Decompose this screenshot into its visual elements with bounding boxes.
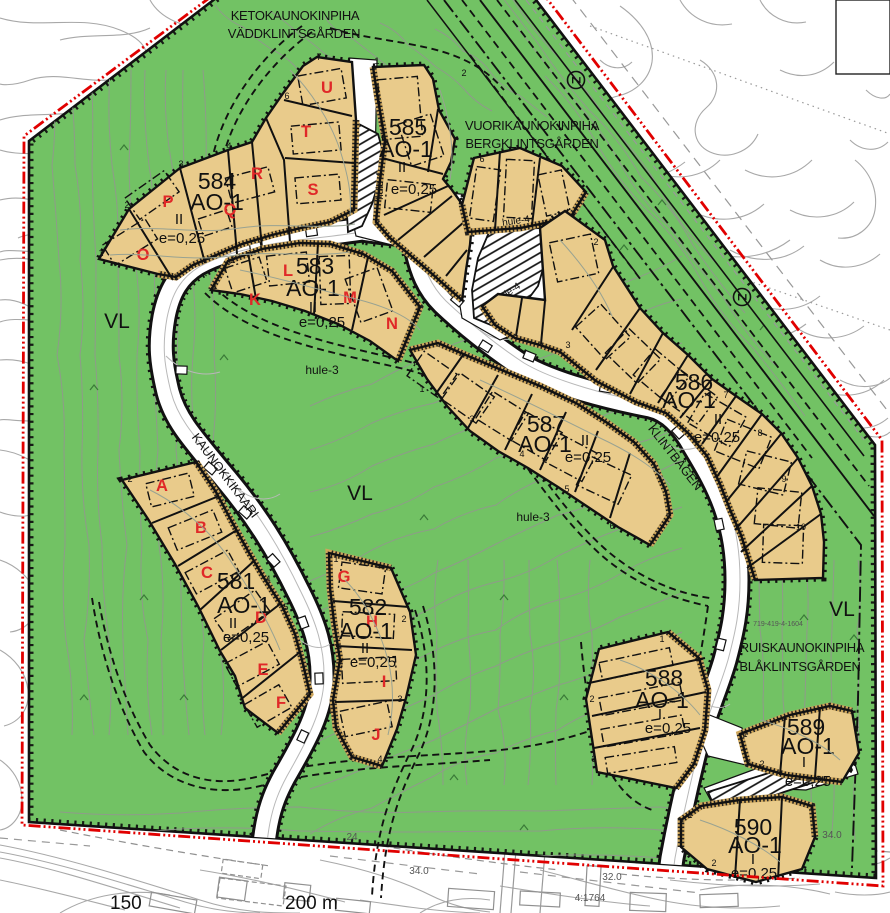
svg-text:J: J bbox=[371, 726, 380, 744]
svg-text:4: 4 bbox=[519, 449, 524, 459]
svg-text:3: 3 bbox=[397, 694, 402, 704]
svg-text:1: 1 bbox=[212, 281, 217, 291]
svg-text:2: 2 bbox=[124, 200, 129, 210]
svg-text:6: 6 bbox=[609, 521, 614, 531]
svg-text:S: S bbox=[307, 181, 318, 199]
svg-text:e=0,25: e=0,25 bbox=[223, 629, 269, 646]
svg-text:M: M bbox=[343, 289, 357, 307]
svg-text:2: 2 bbox=[127, 474, 132, 484]
svg-text:AO-1: AO-1 bbox=[662, 387, 716, 413]
svg-text:II: II bbox=[175, 211, 183, 228]
svg-text:E: E bbox=[257, 661, 268, 679]
svg-text:VL: VL bbox=[104, 310, 130, 333]
svg-text:e=0,25: e=0,25 bbox=[694, 429, 740, 446]
svg-text:VL: VL bbox=[829, 598, 855, 621]
svg-text:C: C bbox=[201, 564, 213, 582]
svg-text:hule-3: hule-3 bbox=[516, 510, 550, 524]
svg-text:BLÅKLINTSGÅRDEN: BLÅKLINTSGÅRDEN bbox=[739, 659, 860, 674]
svg-text:2: 2 bbox=[230, 255, 235, 265]
svg-text:1: 1 bbox=[742, 729, 747, 739]
svg-text:4: 4 bbox=[377, 754, 382, 764]
svg-text:3: 3 bbox=[469, 414, 474, 424]
svg-text:2: 2 bbox=[759, 759, 764, 769]
svg-text:7: 7 bbox=[723, 390, 728, 400]
svg-text:34.0: 34.0 bbox=[409, 866, 429, 877]
svg-text:II: II bbox=[581, 432, 589, 449]
svg-text:hule-4: hule-4 bbox=[375, 172, 386, 200]
svg-text:e=0,25: e=0,25 bbox=[391, 181, 437, 198]
svg-text:A: A bbox=[156, 477, 168, 495]
svg-text:3: 3 bbox=[357, 249, 362, 259]
svg-text:KETOKAUNOKINPIHA: KETOKAUNOKINPIHA bbox=[231, 8, 360, 23]
svg-text:150: 150 bbox=[110, 893, 142, 913]
svg-text:e=0,25: e=0,25 bbox=[350, 654, 396, 671]
svg-text:T: T bbox=[301, 123, 311, 141]
svg-text:1: 1 bbox=[333, 554, 338, 564]
svg-text:3: 3 bbox=[591, 754, 596, 764]
svg-text:4: 4 bbox=[265, 574, 270, 584]
svg-text:3: 3 bbox=[195, 459, 200, 469]
svg-text:hule-3: hule-3 bbox=[305, 363, 339, 377]
svg-text:3: 3 bbox=[178, 159, 183, 169]
svg-text:10: 10 bbox=[796, 522, 806, 532]
svg-text:582: 582 bbox=[349, 594, 387, 620]
svg-text:K: K bbox=[249, 291, 261, 309]
svg-text:3: 3 bbox=[565, 340, 570, 350]
svg-text:8: 8 bbox=[757, 428, 762, 438]
svg-text:2: 2 bbox=[401, 614, 406, 624]
svg-text:4: 4 bbox=[226, 141, 231, 151]
svg-text:N: N bbox=[386, 315, 398, 333]
svg-text:R: R bbox=[251, 165, 263, 183]
svg-text:200 m: 200 m bbox=[285, 893, 338, 913]
svg-text:24: 24 bbox=[346, 832, 358, 843]
svg-text:9: 9 bbox=[781, 474, 786, 484]
svg-text:U: U bbox=[321, 79, 333, 97]
svg-text:5: 5 bbox=[564, 484, 569, 494]
svg-text:2: 2 bbox=[593, 237, 598, 247]
svg-text:2: 2 bbox=[711, 858, 716, 868]
svg-text:1: 1 bbox=[659, 634, 664, 644]
svg-text:719-419-4-1604: 719-419-4-1604 bbox=[753, 621, 803, 628]
svg-text:6: 6 bbox=[479, 154, 484, 164]
svg-text:e=0,25: e=0,25 bbox=[731, 865, 777, 882]
svg-text:Z: Z bbox=[735, 293, 749, 300]
svg-text:II: II bbox=[398, 159, 406, 176]
svg-text:1: 1 bbox=[419, 384, 424, 394]
svg-text:1: 1 bbox=[687, 810, 692, 820]
svg-text:5: 5 bbox=[283, 602, 288, 612]
svg-text:VUORIKAUNOKINPIHA: VUORIKAUNOKINPIHA bbox=[465, 118, 600, 133]
svg-text:AO-1: AO-1 bbox=[518, 431, 572, 457]
svg-text:I: I bbox=[802, 754, 806, 771]
svg-text:7: 7 bbox=[316, 52, 321, 62]
svg-text:6: 6 bbox=[284, 91, 289, 101]
svg-text:AO-1: AO-1 bbox=[190, 189, 244, 215]
svg-text:2: 2 bbox=[589, 694, 594, 704]
svg-text:1: 1 bbox=[98, 248, 103, 258]
svg-text:P: P bbox=[162, 193, 173, 211]
svg-text:RUISKAUNOKINPIHA: RUISKAUNOKINPIHA bbox=[740, 640, 865, 655]
svg-text:AO-1: AO-1 bbox=[781, 733, 835, 759]
svg-text:e=0,25: e=0,25 bbox=[299, 314, 345, 331]
svg-text:34.0: 34.0 bbox=[822, 830, 842, 841]
svg-text:1: 1 bbox=[374, 56, 379, 66]
svg-text:Z: Z bbox=[569, 76, 583, 83]
svg-text:F: F bbox=[276, 694, 286, 712]
svg-text:4:1764: 4:1764 bbox=[575, 893, 606, 904]
svg-text:BERGKLINTSGÅRDEN: BERGKLINTSGÅRDEN bbox=[465, 136, 598, 151]
svg-text:e=0,25: e=0,25 bbox=[785, 773, 831, 790]
svg-text:e=0,25: e=0,25 bbox=[159, 230, 205, 247]
svg-text:e=0,25: e=0,25 bbox=[645, 720, 691, 737]
svg-text:I: I bbox=[382, 673, 387, 691]
svg-text:32.0: 32.0 bbox=[602, 872, 622, 883]
svg-text:II: II bbox=[714, 411, 722, 428]
svg-text:VÄDDKLINTSGÅRDEN: VÄDDKLINTSGÅRDEN bbox=[228, 26, 360, 41]
svg-text:VL: VL bbox=[347, 482, 373, 505]
svg-text:e=0,25: e=0,25 bbox=[565, 449, 611, 466]
svg-text:2: 2 bbox=[461, 68, 466, 78]
